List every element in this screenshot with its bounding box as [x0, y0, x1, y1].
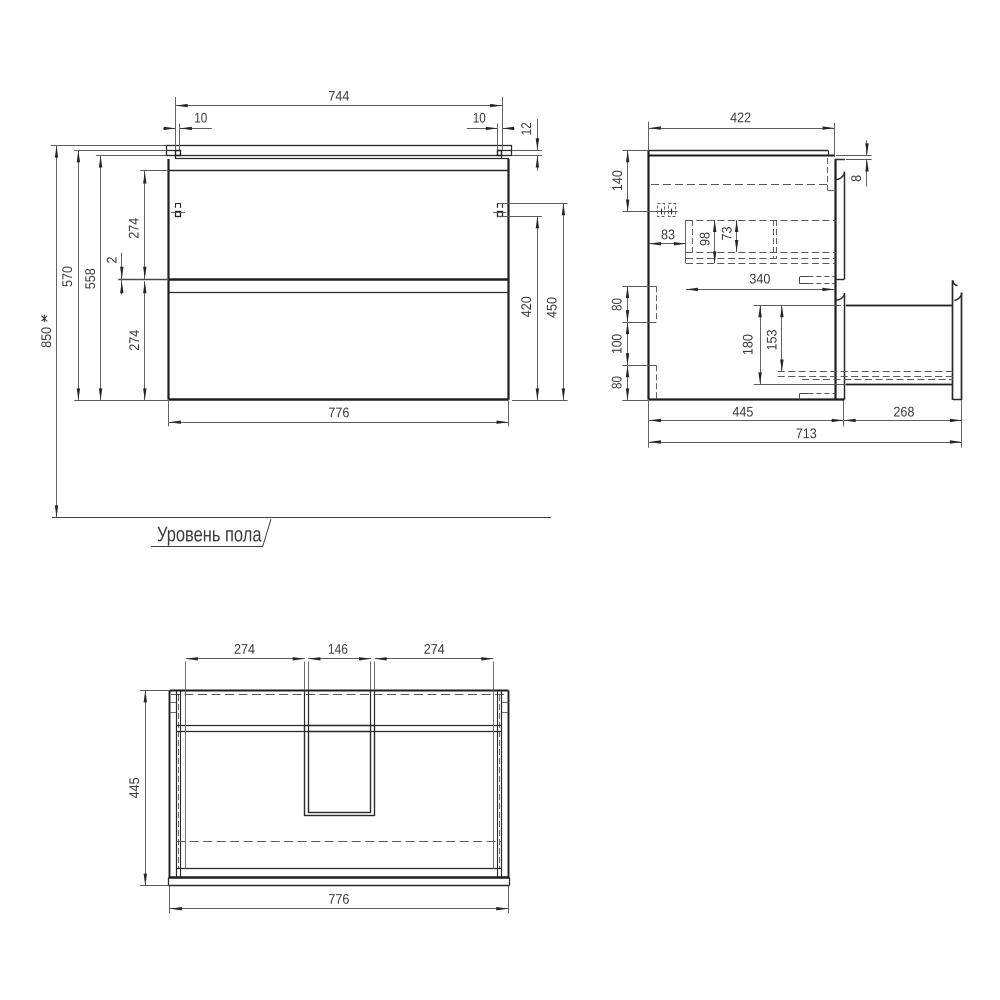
svg-text:10: 10 — [194, 109, 207, 125]
svg-text:98: 98 — [697, 232, 713, 246]
svg-text:153: 153 — [763, 329, 779, 350]
svg-text:180: 180 — [740, 334, 756, 355]
svg-text:268: 268 — [893, 403, 914, 419]
svg-text:274: 274 — [126, 218, 142, 239]
svg-text:Уровень пола: Уровень пола — [157, 523, 262, 546]
svg-text:776: 776 — [328, 404, 349, 420]
svg-text:776: 776 — [328, 891, 349, 907]
svg-text:10: 10 — [473, 109, 486, 125]
svg-text:80: 80 — [609, 376, 625, 389]
svg-text:450: 450 — [544, 297, 560, 318]
svg-text:146: 146 — [328, 641, 348, 657]
svg-text:558: 558 — [82, 268, 98, 289]
svg-text:570: 570 — [59, 266, 75, 287]
svg-text:713: 713 — [796, 425, 817, 441]
svg-text:744: 744 — [328, 88, 349, 104]
svg-text:420: 420 — [518, 296, 534, 317]
svg-text:422: 422 — [730, 109, 751, 125]
svg-text:445: 445 — [126, 777, 142, 798]
svg-text:274: 274 — [424, 641, 445, 657]
svg-text:80: 80 — [609, 298, 625, 311]
svg-text:100: 100 — [609, 334, 625, 354]
svg-text:12: 12 — [518, 122, 534, 135]
svg-text:2: 2 — [103, 256, 119, 263]
svg-text:445: 445 — [732, 403, 753, 419]
svg-text:274: 274 — [126, 330, 142, 351]
svg-text:8: 8 — [848, 175, 864, 182]
svg-text:850: 850 — [38, 327, 54, 348]
svg-text:73: 73 — [719, 226, 735, 240]
svg-text:140: 140 — [609, 170, 625, 191]
svg-text:340: 340 — [749, 270, 770, 286]
svg-text:274: 274 — [234, 641, 255, 657]
svg-text:83: 83 — [661, 226, 675, 242]
